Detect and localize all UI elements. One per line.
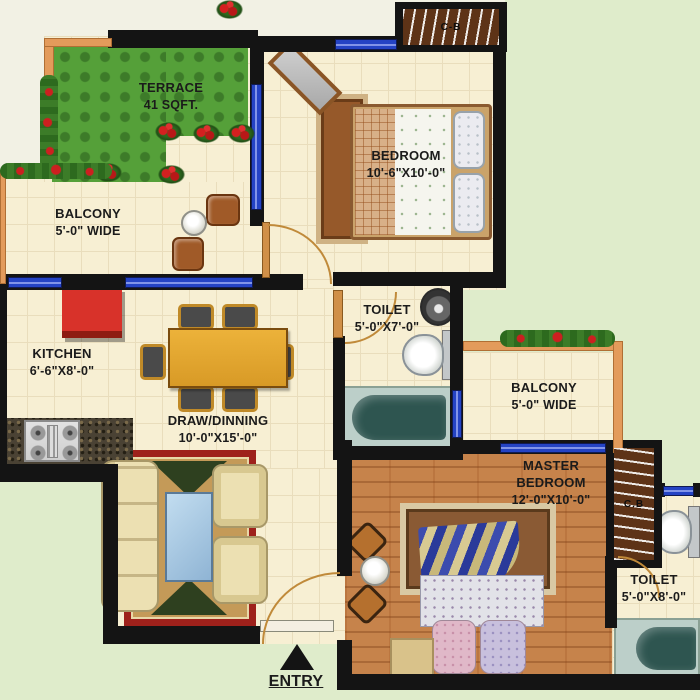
- flower-pot: [228, 124, 255, 143]
- dining-chair: [222, 386, 258, 412]
- room-name: DRAW/DINNING: [158, 413, 278, 430]
- bed-pillow: [432, 620, 476, 674]
- wall-toilet-left: [333, 336, 345, 460]
- room-dim: 10'-0"X15'-0": [158, 430, 278, 446]
- bedroom-cupboard: C-B: [403, 9, 499, 45]
- patio-chair: [172, 237, 204, 271]
- wall-toilet-bottom: [333, 446, 463, 460]
- window-living-west: [251, 84, 262, 210]
- room-dim: 5'-0"X8'-0": [610, 589, 698, 605]
- armchair: [212, 536, 268, 604]
- coffee-table: [165, 492, 213, 582]
- flower-pot: [216, 0, 243, 19]
- cupboard-label: C-B: [441, 22, 462, 33]
- floor-plan: C-B C.B: [0, 0, 700, 700]
- room-dim: 5'-0" WIDE: [496, 397, 592, 413]
- room-dim: 6'-6"X8'-0": [20, 363, 104, 379]
- entry-text: ENTRY: [244, 672, 348, 693]
- room-name: KITCHEN: [20, 346, 104, 363]
- bed-pillow: [453, 111, 485, 169]
- wall-living-bottom: [103, 626, 260, 644]
- cupboard-label: C.B: [624, 499, 644, 510]
- kitchen-label: KITCHEN 6'-6"X8'-0": [20, 346, 104, 379]
- patio-chair: [206, 194, 240, 226]
- terrace-parapet-top: [44, 38, 112, 47]
- entry-label: ENTRY: [244, 672, 348, 693]
- room-name: TOILET: [610, 572, 698, 589]
- master-bedroom-label: MASTER BEDROOM 12'-0"X10'-0": [502, 458, 600, 508]
- flower-garland: [500, 330, 615, 347]
- room-dim: 12'-0"X10'-0": [502, 492, 600, 508]
- flower-pot: [193, 124, 220, 143]
- balcony-right-parapet-right: [613, 341, 623, 453]
- room-dim: 41 SQFT.: [128, 97, 214, 113]
- master-cupboard: C.B: [614, 448, 654, 560]
- bathtub-basin: [352, 395, 446, 440]
- room-name: TOILET: [348, 302, 426, 319]
- room-dim: 5'-0"X7'-0": [348, 319, 426, 335]
- bathtub-basin: [636, 627, 696, 670]
- patio-table: [181, 210, 207, 236]
- window-master-balcony: [500, 443, 606, 453]
- bench: [390, 638, 434, 676]
- room-name: TERRACE: [128, 80, 214, 97]
- bed-pillow: [453, 173, 485, 233]
- wall-master-left: [337, 440, 352, 576]
- window-kitchen-balcony: [8, 277, 62, 288]
- room-dim: 10'-6"X10'-0": [358, 165, 454, 181]
- entry-arrow: [280, 644, 314, 670]
- stove: [24, 420, 80, 462]
- dining-chair: [178, 304, 214, 330]
- wall-toilet2-top: [693, 483, 700, 497]
- toilet-top-label: TOILET 5'-0"X7'-0": [348, 302, 426, 335]
- terrace-label: TERRACE 41 SQFT.: [128, 80, 214, 113]
- wall-living-left: [103, 464, 118, 644]
- room-name: BALCONY: [496, 380, 592, 397]
- bedroom-label: BEDROOM 10'-6"X10'-0": [358, 148, 454, 181]
- window-dining-balcony: [125, 277, 253, 288]
- wall-kitchen-bottom: [0, 464, 118, 482]
- wall-terrace-top: [108, 30, 258, 48]
- wall-bottom: [337, 674, 700, 690]
- window-toilet2: [663, 486, 694, 496]
- flower-garland: [0, 163, 112, 179]
- balcony-left-label: BALCONY 5'-0" WIDE: [40, 206, 136, 239]
- room-name: MASTER BEDROOM: [502, 458, 600, 492]
- dining-chair: [140, 344, 166, 380]
- refrigerator: [62, 288, 122, 338]
- balcony-right-label: BALCONY 5'-0" WIDE: [496, 380, 592, 413]
- master-side-table: [360, 556, 390, 586]
- wall-toilet-top: [333, 272, 463, 286]
- armchair: [212, 464, 268, 528]
- dining-table: [168, 328, 288, 388]
- bed-pillow: [480, 620, 526, 674]
- flower-garland: [40, 75, 58, 170]
- toilet-bowl: [402, 334, 444, 376]
- window-toilet1: [452, 390, 462, 438]
- flower-pot: [155, 122, 182, 141]
- wall-kitchen-left: [0, 288, 7, 482]
- flower-pot: [158, 165, 185, 184]
- toilet-master-label: TOILET 5'-0"X8'-0": [610, 572, 698, 605]
- dining-chair: [222, 304, 258, 330]
- window-bedroom-top: [335, 39, 397, 50]
- dining-chair: [178, 386, 214, 412]
- stove-grill: [47, 425, 58, 458]
- outside-area-left: [0, 36, 44, 170]
- room-name: BALCONY: [40, 206, 136, 223]
- room-name: BEDROOM: [358, 148, 454, 165]
- toilet-door: [333, 290, 343, 338]
- balcony-parapet-left: [0, 170, 6, 284]
- master-bed-quilt: [420, 575, 544, 627]
- room-dim: 5'-0" WIDE: [40, 223, 136, 239]
- draw-dining-label: DRAW/DINNING 10'-0"X15'-0": [158, 413, 278, 446]
- wall-bedroom-right: [493, 36, 506, 288]
